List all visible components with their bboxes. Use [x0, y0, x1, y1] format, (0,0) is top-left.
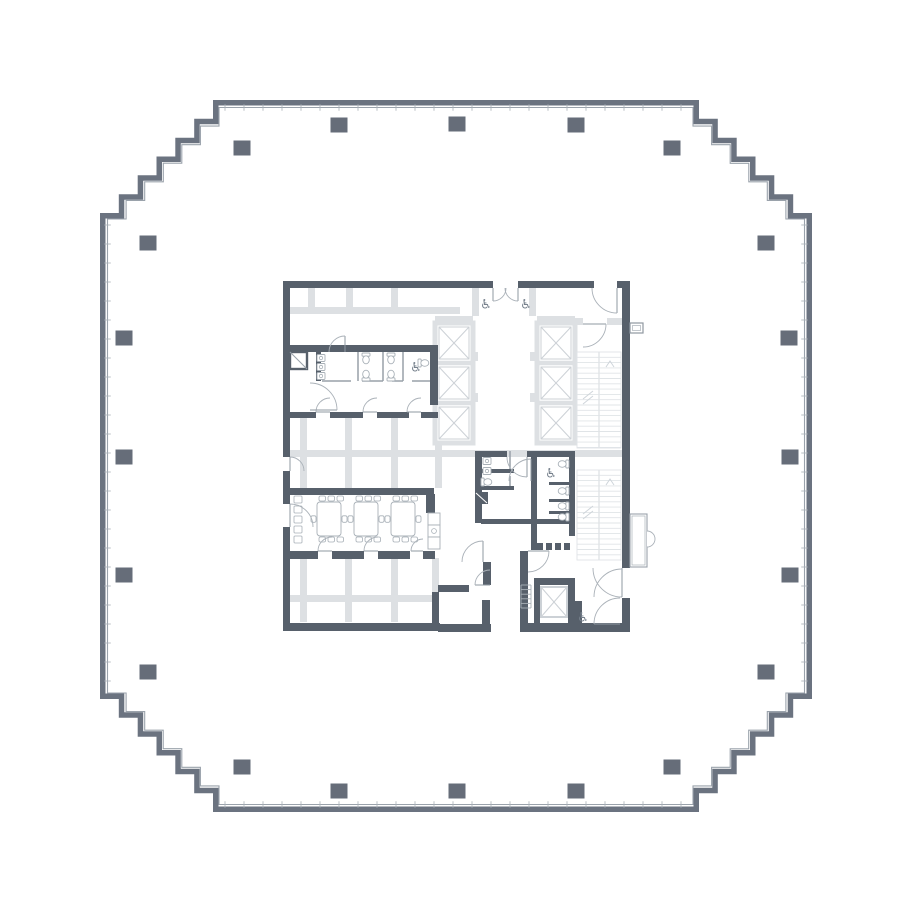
elevator-bank [435, 323, 575, 443]
toilet-bowl [558, 514, 566, 521]
break-room-furniture [294, 496, 440, 549]
column [664, 760, 681, 775]
grid-bar [288, 450, 628, 457]
column [234, 141, 251, 156]
column [664, 141, 681, 156]
grid-bar [300, 558, 307, 622]
sink-fixture [317, 355, 325, 362]
chair [356, 496, 363, 501]
toilet-fixture [387, 353, 395, 364]
column [568, 784, 585, 799]
sink-fixture [483, 458, 491, 465]
column [116, 331, 133, 346]
toilet-bowl [558, 503, 566, 510]
column [116, 450, 133, 465]
chair [385, 516, 390, 523]
kitchen-unit [428, 537, 440, 549]
door-swing-arc [310, 383, 337, 410]
wall [438, 624, 491, 632]
stool [294, 536, 302, 543]
kitchen-unit [428, 525, 440, 537]
wall [518, 281, 594, 288]
column [758, 236, 775, 251]
toilet-fixture [362, 353, 370, 364]
stair-up-arrow [606, 361, 614, 367]
chair [319, 496, 326, 501]
chair [379, 516, 384, 523]
column [568, 118, 585, 133]
column [116, 568, 133, 583]
wall [288, 488, 434, 495]
cabinet-outline [630, 323, 643, 333]
chair [337, 496, 344, 501]
chair [337, 537, 344, 542]
wall [475, 504, 482, 523]
louver-dash [546, 543, 552, 550]
toilet-fixture [387, 370, 395, 381]
wall [288, 551, 318, 559]
chair [393, 537, 400, 542]
wall [423, 551, 435, 559]
column [449, 784, 466, 799]
toilet-bowl [421, 360, 429, 367]
toilet-fixture [558, 502, 569, 510]
grid-bar [346, 288, 353, 307]
wall [622, 281, 630, 568]
door-swing-arc [594, 598, 620, 624]
stair-up-arrow [606, 479, 614, 485]
chair [416, 516, 421, 523]
column [331, 118, 348, 133]
column [449, 117, 466, 132]
door-swing-arc [462, 541, 483, 562]
toilet-fixture [558, 487, 569, 495]
chair [411, 496, 418, 501]
wall [531, 519, 537, 550]
wall [549, 499, 569, 502]
wall [377, 412, 409, 418]
door-swing-arc [493, 288, 506, 301]
wall [622, 598, 630, 632]
door-swing-arc [593, 568, 622, 597]
grid-bar [530, 393, 535, 402]
stool [294, 516, 302, 523]
floor-plan-drawing: ♿♿♿♿♿ [0, 0, 914, 914]
grid-bar [530, 352, 535, 361]
toilet-fixture [558, 513, 569, 521]
wheelchair-icon: ♿ [577, 611, 589, 626]
chair [402, 537, 409, 542]
chair [402, 496, 409, 501]
chair [348, 516, 353, 523]
table [391, 502, 415, 536]
toilet-fixture [558, 460, 569, 468]
vestibule-door-arc [647, 531, 655, 547]
column [781, 331, 798, 346]
wall [481, 519, 531, 524]
column [758, 665, 775, 680]
toilet-bowl [558, 488, 566, 495]
stool [294, 526, 302, 533]
table [317, 502, 341, 536]
grid-bar [472, 288, 479, 316]
kitchen-unit [428, 513, 440, 525]
wall [426, 494, 435, 513]
wall [534, 585, 540, 625]
toilet-bowl [484, 479, 492, 486]
fire-cabinet [630, 323, 643, 333]
door-swing-arc [290, 504, 313, 527]
door-swing-arc [363, 398, 377, 412]
chair [393, 496, 400, 501]
wall [483, 562, 491, 585]
column [782, 568, 799, 583]
wall [531, 451, 537, 525]
wall [378, 551, 410, 559]
wheelchair-icon: ♿ [520, 298, 532, 313]
wall [430, 352, 438, 405]
column [234, 760, 251, 775]
wall [283, 418, 290, 457]
vestibule-outline [630, 514, 647, 567]
sink-counter [317, 373, 325, 380]
floor-plan-page: ♿♿♿♿♿ [0, 0, 914, 914]
wall [332, 551, 364, 559]
wall [438, 585, 469, 592]
toilet-bowl [363, 370, 370, 378]
wall [283, 527, 290, 630]
wall [534, 578, 575, 585]
sink-fixture [317, 364, 325, 371]
door-swing-arc [583, 324, 606, 347]
door-swing-arc [528, 551, 549, 572]
grid-bar [391, 288, 398, 307]
chair [356, 537, 363, 542]
sink-counter [483, 468, 491, 475]
toilet-bowl [388, 356, 395, 364]
grid-bar [391, 558, 398, 622]
sink-counter [317, 355, 325, 362]
toilet-bowl [388, 370, 395, 378]
stair-break-mark [583, 391, 593, 404]
wheelchair-icon: ♿ [545, 467, 557, 482]
wall [283, 471, 290, 504]
service-elevator [541, 587, 567, 617]
wall [283, 623, 440, 631]
stool [294, 496, 302, 503]
louver-dash [564, 543, 570, 550]
wheelchair-icon: ♿ [480, 298, 492, 313]
grid-bar [288, 595, 438, 602]
wall [568, 585, 575, 625]
sink-fixture [317, 373, 325, 380]
grid-bar [308, 288, 315, 307]
column [331, 784, 348, 799]
wall [421, 412, 438, 418]
grid-bar [607, 318, 623, 325]
vestibule [630, 514, 655, 567]
wall [283, 412, 316, 418]
door-swing-arc [592, 288, 617, 313]
toilet-fixture [481, 478, 492, 486]
wall [549, 482, 569, 485]
grid-bar [288, 307, 460, 314]
chair [342, 516, 347, 523]
wall [330, 412, 363, 418]
column [140, 665, 157, 680]
column [140, 236, 157, 251]
sink-counter [483, 458, 491, 465]
wall [283, 281, 493, 288]
sink-counter [317, 364, 325, 371]
toilet-fixture [362, 370, 370, 381]
chair [328, 496, 335, 501]
door-swing-arc [509, 459, 531, 481]
sink-fixture [483, 468, 491, 475]
louver-dash [537, 543, 543, 550]
wheelchair-icon: ♿ [410, 361, 422, 376]
column [782, 450, 799, 465]
toilet-bowl [558, 461, 566, 468]
door-swing-arc [407, 398, 421, 412]
chair [374, 496, 381, 501]
structural-columns [116, 117, 799, 799]
louver-dash [555, 543, 561, 550]
table [354, 502, 378, 536]
toilet-bowl [363, 356, 370, 364]
louver-wall [537, 543, 570, 550]
door-swing-arc [505, 288, 518, 301]
door-swing-arc [594, 569, 622, 597]
chair [365, 496, 372, 501]
grid-bar [345, 558, 352, 622]
wall [482, 486, 514, 490]
